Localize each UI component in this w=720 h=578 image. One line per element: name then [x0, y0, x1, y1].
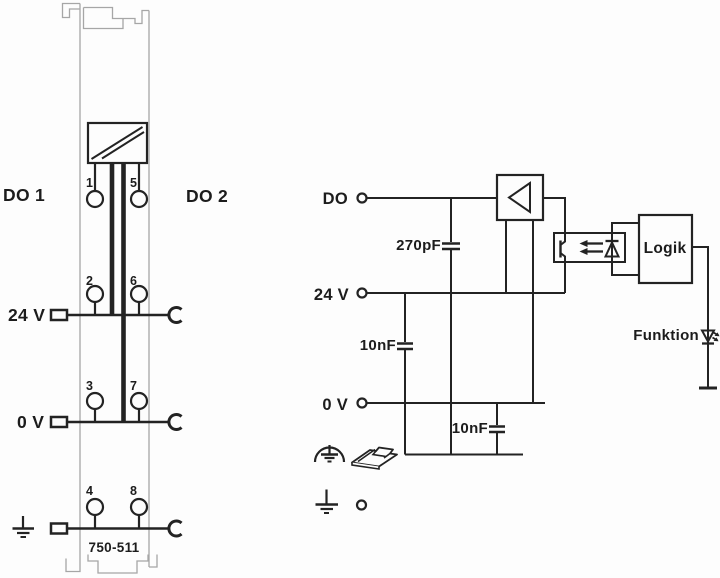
0v-terminal-dot [358, 399, 367, 408]
lug-24v [51, 310, 67, 320]
amplifier-block [497, 175, 543, 220]
label-module-24v: 24 V [8, 305, 45, 325]
terminal-7-number: 7 [130, 379, 137, 393]
cage-clamp-0v-icon [169, 415, 182, 430]
label-cap-270pf: 270pF [396, 237, 441, 254]
do-terminal-dot [358, 194, 367, 203]
earth-terminal-icon [316, 490, 339, 514]
label-cap-10nf-0v: 10nF [452, 420, 488, 437]
terminal-3-number: 3 [86, 379, 93, 393]
cage-clamp-24v-icon [169, 308, 182, 323]
diagram-canvas: 1 5 2 6 3 7 4 8 DO 1 DO 2 24 V 0 V 750-5… [0, 0, 720, 578]
terminal-5-contact [131, 191, 147, 207]
logik-block: Logik [639, 215, 692, 283]
label-logik: Logik [644, 240, 687, 257]
label-cap-10nf-24v: 10nF [360, 337, 396, 354]
terminal-5-number: 5 [130, 176, 137, 190]
terminal-7-contact [131, 393, 147, 409]
light-arrows-icon [580, 240, 604, 255]
terminal-3-contact [87, 393, 103, 409]
earth-ground-icon [13, 516, 35, 537]
label-do1: DO 1 [3, 185, 45, 205]
phototransistor-icon [561, 233, 566, 262]
cap-10nf-24v-plates [397, 344, 413, 350]
label-sch-24v: 24 V [314, 286, 349, 304]
terminal-4-number: 4 [86, 484, 93, 498]
wire-logik-to-led [693, 247, 709, 387]
terminal-2-number: 2 [86, 274, 93, 288]
lug-earth [51, 524, 67, 534]
terminal-8-contact [131, 499, 147, 515]
cage-clamp-earth-icon [169, 521, 182, 536]
wiring-diagram: 1 5 2 6 3 7 4 8 DO 1 DO 2 24 V 0 V 750-5… [0, 0, 720, 578]
label-sch-do: DO [323, 190, 348, 208]
module-row-earth [13, 516, 182, 537]
label-sch-0v: 0 V [322, 396, 348, 414]
optocoupler [554, 233, 625, 262]
part-number: 750-511 [89, 540, 140, 555]
terminal-6-contact [131, 286, 147, 302]
amplifier-box [497, 175, 543, 220]
din-rail-icon [352, 448, 397, 470]
funktion-led-emission-arrows [713, 332, 720, 341]
cap-270pf-plates [442, 244, 460, 250]
label-funktion: Funktion [633, 327, 699, 344]
terminal-1-contact [87, 191, 103, 207]
24v-terminal-dot [358, 289, 367, 298]
module-row-24v [51, 308, 182, 323]
module-row-0v [51, 415, 182, 430]
terminal-8-number: 8 [130, 484, 137, 498]
terminal-2-contact [87, 286, 103, 302]
terminal-6-number: 6 [130, 274, 137, 288]
wire-amp-to-opto [543, 198, 565, 233]
earth-terminal-dot [357, 501, 366, 510]
terminal-4-contact [87, 499, 103, 515]
schematic: DO 24 V 0 V 270pF 10nF [314, 175, 720, 513]
cap-10nf-0v-plates [489, 427, 505, 433]
shield-ground-icon [315, 445, 344, 462]
terminal-contacts [87, 191, 147, 515]
terminal-stems [95, 163, 139, 529]
label-do2: DO 2 [186, 186, 228, 206]
terminal-1-number: 1 [86, 176, 93, 190]
label-module-0v: 0 V [17, 412, 44, 432]
isolation-box [88, 123, 147, 163]
funktion-led: Funktion [633, 327, 719, 388]
lug-0v [51, 417, 67, 427]
